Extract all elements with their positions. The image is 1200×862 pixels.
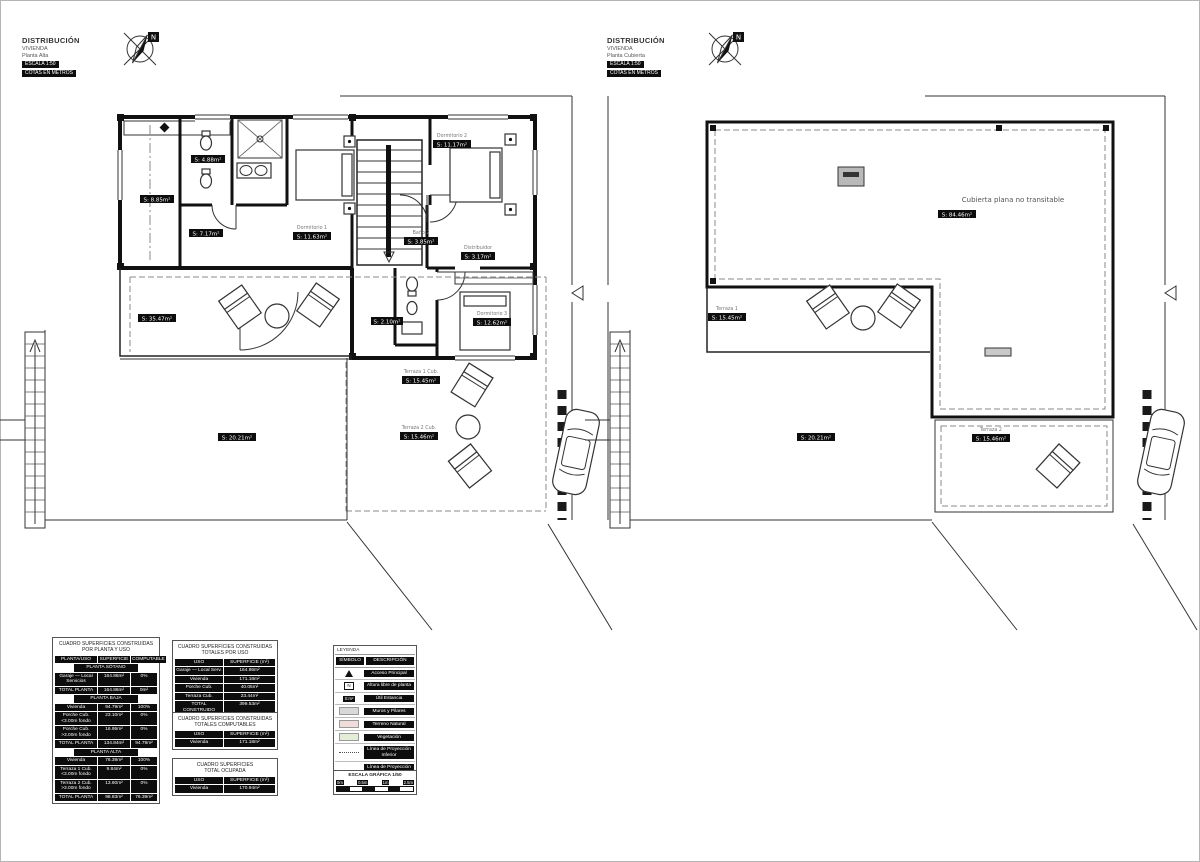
table-superficies-por-planta: CUADRO SUPERFICIES CONSTRUIDAS POR PLANT… [52,637,160,804]
svg-text:S: 12.62m²: S: 12.62m² [477,319,507,326]
table-total-ocupada: CUADRO SUPERFICIES TOTAL OCUPADA USO SUP… [172,758,278,796]
table-row: Vivienda 94.79m² 100% [55,704,157,712]
section-header: PLANTA ALTA [55,749,157,757]
table-row: Vivienda 171.18m² [175,739,275,747]
svg-text:Terraza 2: Terraza 2 [979,427,1002,433]
legend-row: N Altura libre de planta [335,680,415,693]
covered-terrace [120,268,352,359]
table-header-row: PLANTA/USO SUPERFICIE COMPUTABLE [55,656,157,664]
svg-text:Terraza 2 Cub.: Terraza 2 Cub. [401,425,436,431]
svg-text:Distribuidor: Distribuidor [464,245,492,251]
table-totales-por-uso: CUADRO SUPERFICIES CONSTRUIDAS TOTALES P… [172,640,278,717]
svg-text:Dormitorio 1: Dormitorio 1 [297,225,327,231]
car-icon [551,407,602,496]
scale-ticks: 0m 0.5m 1m 2.5m [336,780,414,785]
table-row: TOTAL PLANTA 98.83m² 76.39m² [55,794,157,802]
table-row: Garaje — Local Serv. 164.86m² [175,667,275,675]
svg-text:S: 15.46m²: S: 15.46m² [404,433,434,440]
table-totales-computables: CUADRO SUPERFICIES CONSTRUIDAS TOTALES C… [172,712,278,750]
scale-bar [336,786,414,792]
floor-name: Planta Cubierta [607,53,665,59]
svg-text:S: 8.85m²: S: 8.85m² [144,196,171,203]
walls-swatch [339,707,359,715]
svg-text:S: 3.17m²: S: 3.17m² [465,253,492,260]
section-arrow-icon [1165,286,1176,300]
svg-text:S: 84.46m²: S: 84.46m² [942,211,972,218]
svg-text:S: 15.45m²: S: 15.45m² [406,377,436,384]
table-row: Vivienda 170.94m² [175,785,275,793]
table-row: Garaje — Local Servicios 164.86m² 0% [55,673,157,686]
svg-text:S: 11.17m²: S: 11.17m² [437,141,467,148]
svg-text:S: 20.21m²: S: 20.21m² [801,434,831,441]
bathroom1-fixtures [201,120,283,188]
table-row: Terraza 2 Cub. >3.00m fondo 13.60m² 0% [55,780,157,793]
svg-text:S: 15.46m²: S: 15.46m² [976,435,1006,442]
compass-rose-right: N [709,32,744,65]
terrain-swatch [339,720,359,728]
legend-row: Acceso Principal [335,668,415,681]
drawing-subtitle: VIVIENDA [22,46,80,52]
svg-text:S: 4.88m²: S: 4.88m² [195,156,222,163]
drawing-sheet: S: 4.88m² S: 8.85m² S: 7.17m² Dormitorio… [0,0,1200,862]
drawing-title: DISTRIBUCIÓN [607,36,665,45]
vegetation-swatch [339,733,359,741]
level-box-icon: N [344,682,353,690]
table-header-row: USO SUPERFICIE (m²) [175,731,275,739]
legend: LEYENDA SÍMBOLO DESCRIPCIÓN Acceso Princ… [333,645,417,781]
legend-row: Vegetación [335,731,415,744]
legend-row: S:m² Útil Estancia [335,693,415,706]
table-title: CUADRO SUPERFICIES CONSTRUIDAS [178,716,272,722]
table-row: TOTAL PLANTA 164.86m² 0m² [55,687,157,695]
legend-row: Terreno Natural [335,718,415,731]
section-header: PLANTA SÓTANO [55,664,157,672]
graphic-scale-title: ESCALA GRÁFICA 1/50 [336,773,414,778]
scale-note: ESCALA 1:50 [22,61,59,69]
table-header-row: USO SUPERFICIE (m²) [175,777,275,785]
table-title: CUADRO SUPERFICIES CONSTRUIDAS [178,644,272,650]
legend-row: Línea de Proyección Inferior [335,744,415,762]
drawing-subtitle: VIVIENDA [607,46,665,52]
stair [357,140,422,265]
units-note: COTAS EN METROS [607,70,661,78]
svg-text:Terraza 1: Terraza 1 [715,306,738,312]
car-icon [1136,407,1187,496]
floor-name: Planta Alta [22,53,80,59]
svg-text:S: 2.10m²: S: 2.10m² [374,318,401,325]
graphic-scale: ESCALA GRÁFICA 1/50 0m 0.5m 1m 2.5m [333,770,417,795]
table-row: Porche Cub. >3.00m fondo 16.95m² 0% [55,726,157,739]
roof-vent-bar [985,348,1011,356]
svg-text:S: 35.47m²: S: 35.47m² [142,315,172,322]
table-title: CUADRO SUPERFICIES [197,762,253,768]
legend-title: LEYENDA [335,647,415,655]
units-note: COTAS EN METROS [22,70,76,78]
svg-text:S: 3.85m²: S: 3.85m² [408,238,435,245]
bed-dorm1 [296,136,355,214]
area-chip-icon: S:m² [343,696,356,702]
exterior-stairs [610,332,630,528]
bathroom2-fixtures [402,277,422,334]
table-title: CUADRO SUPERFICIES CONSTRUIDAS [59,641,153,647]
svg-text:S: 15.45m²: S: 15.45m² [712,314,742,321]
plan-planta-cubierta: Cubierta plana no transitable S: 84.46m²… [585,96,1197,630]
legend-header: SÍMBOLO DESCRIPCIÓN [335,655,415,668]
scale-note: ESCALA 1:50 [607,61,644,69]
dashdot-line-icon [339,752,359,753]
svg-text:N: N [151,34,156,42]
svg-text:S: 11.63m²: S: 11.63m² [297,233,327,240]
table-row: Vivienda 171.18m² [175,676,275,684]
svg-text:S: 20.21m²: S: 20.21m² [222,434,252,441]
svg-text:S: 7.17m²: S: 7.17m² [193,230,220,237]
plan-planta-alta: S: 4.88m² S: 8.85m² S: 7.17m² Dormitorio… [0,96,612,630]
table-row: Terraza 1 Cub. <3.00m fondo 9.84m² 0% [55,766,157,779]
section-arrow-icon [572,286,583,300]
titleblock-right: DISTRIBUCIÓN VIVIENDA Planta Cubierta ES… [607,36,665,77]
drawing-title: DISTRIBUCIÓN [22,36,80,45]
legend-row: Muros y Pilares [335,705,415,718]
compass-rose-left: N [124,32,159,65]
svg-text:Terraza 1 Cub.: Terraza 1 Cub. [403,369,438,375]
section-header: PLANTA BAJA [55,695,157,703]
table-row: Vivienda 76.39m² 100% [55,757,157,765]
table-header-row: USO SUPERFICIE (m²) [175,659,275,667]
svg-text:N: N [736,34,741,42]
door-swings [212,195,465,350]
roof-vents [710,125,1109,284]
bed-dorm3 [455,272,533,350]
exterior-stairs [25,332,45,528]
svg-text:Dormitorio 2: Dormitorio 2 [437,133,467,139]
titleblock-left: DISTRIBUCIÓN VIVIENDA Planta Alta ESCALA… [22,36,80,77]
table-row: TOTAL PLANTA 134.84m² 94.79m² [55,740,157,748]
table-row: Terraza Cub. 23.44m² [175,693,275,701]
terrace2 [935,420,1113,512]
svg-text:Dormitorio 3: Dormitorio 3 [477,311,507,317]
area-labels-right: Cubierta plana no transitable S: 84.46m²… [708,196,1064,442]
table-row: Porche Cub. <3.00m fondo 23.10m² 0% [55,712,157,725]
table-row: Porche Cub. 40.05m² [175,684,275,692]
access-triangle-icon [345,670,353,677]
svg-text:Cubierta plana no transitable: Cubierta plana no transitable [962,196,1064,204]
skylight [838,167,864,186]
svg-text:Baño 2: Baño 2 [413,230,430,236]
